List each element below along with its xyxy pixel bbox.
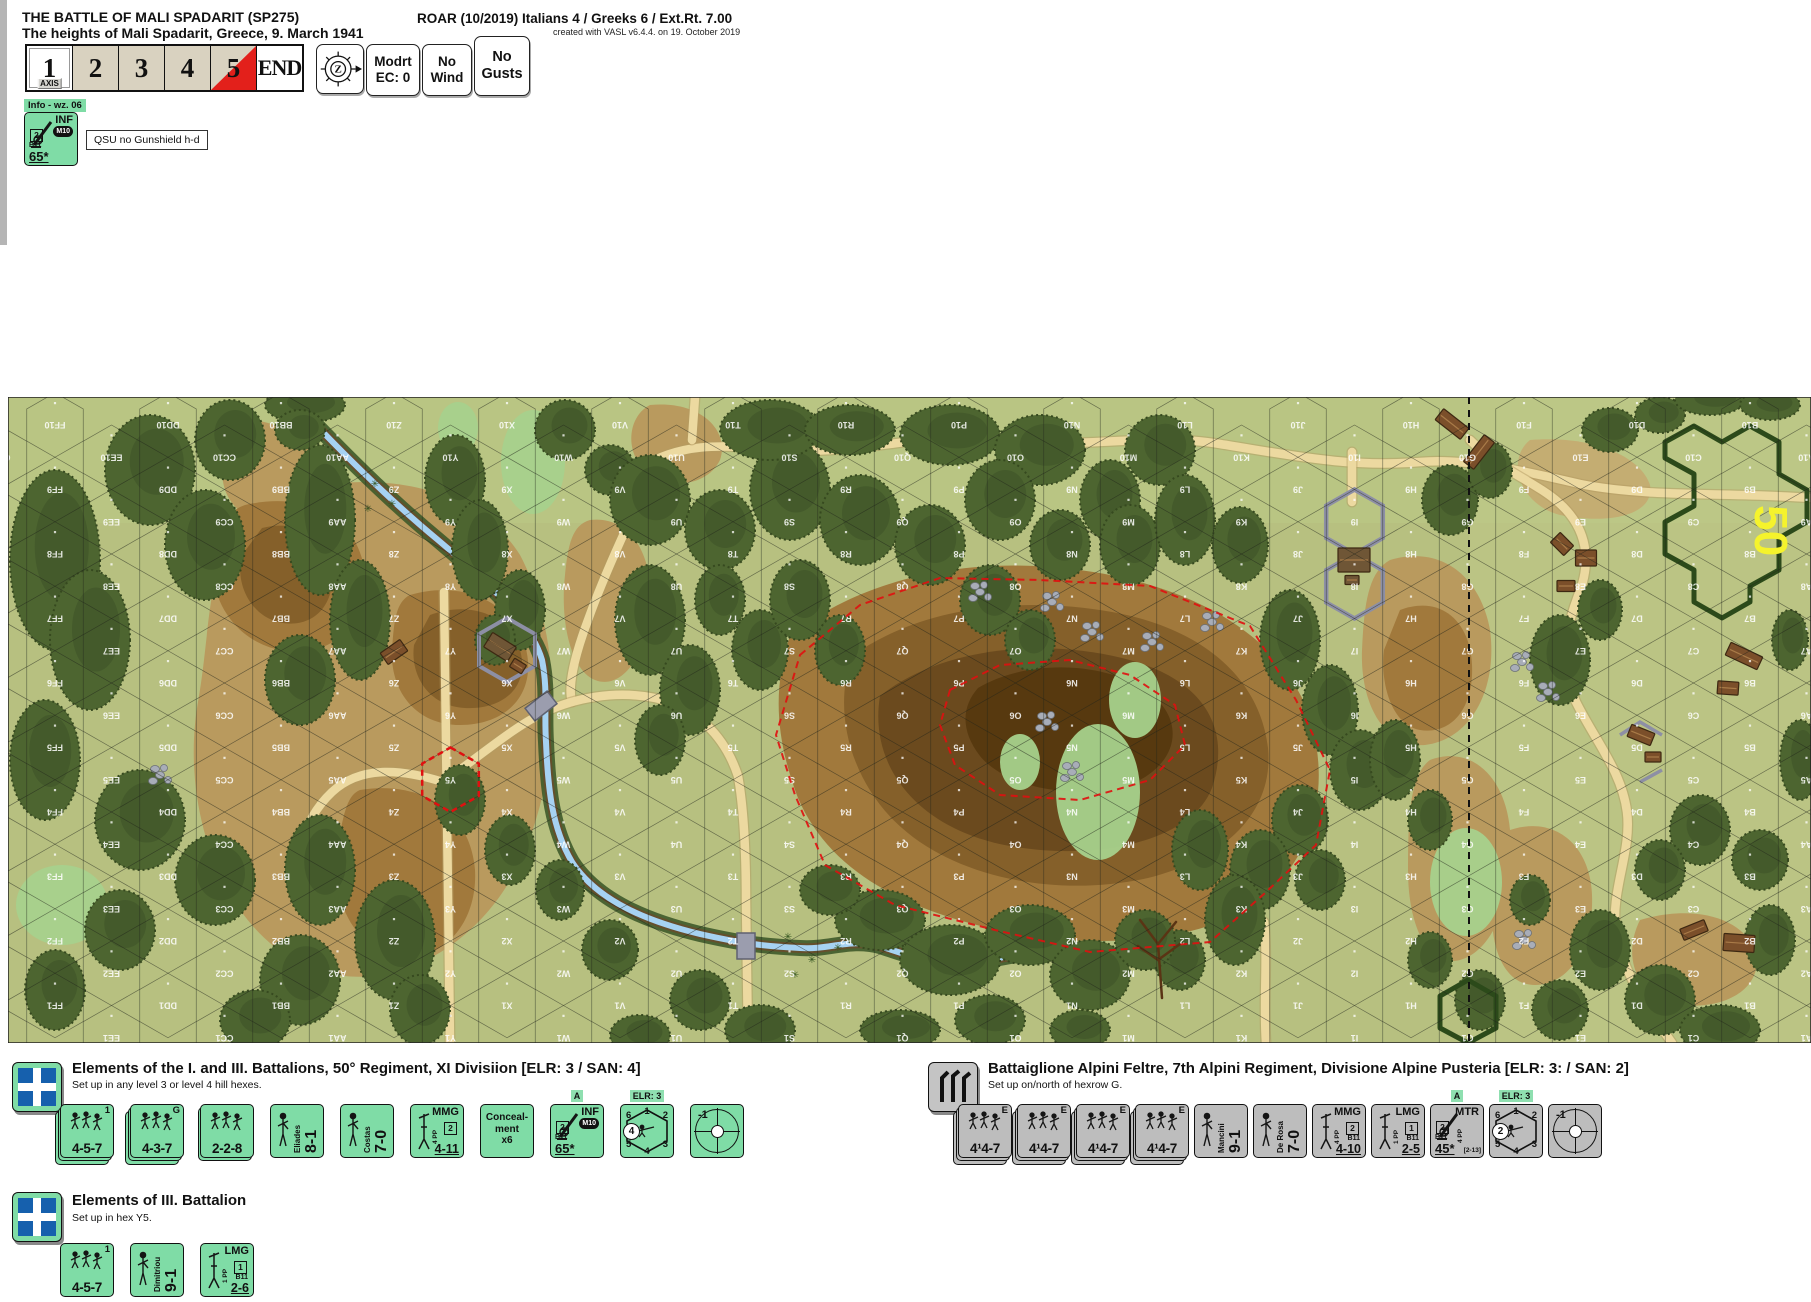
svg-text:G4: G4 xyxy=(1461,839,1473,849)
svg-text:P5: P5 xyxy=(953,743,964,753)
svg-text:E2: E2 xyxy=(1575,968,1586,978)
greek-iii-subtitle: Set up in hex Y5. xyxy=(72,1212,152,1224)
svg-text:D7: D7 xyxy=(1631,614,1643,624)
svg-text:K8: K8 xyxy=(1236,581,1248,591)
svg-text:J1: J1 xyxy=(1293,1001,1303,1011)
svg-text:M9: M9 xyxy=(1122,517,1135,527)
svg-text:T9: T9 xyxy=(728,485,739,495)
svg-text:Q7: Q7 xyxy=(896,646,908,656)
svg-text:EE3: EE3 xyxy=(103,904,120,914)
svg-text:AA3: AA3 xyxy=(328,904,346,914)
svg-text:E9: E9 xyxy=(1575,517,1586,527)
svg-text:B1: B1 xyxy=(1744,1001,1756,1011)
svg-text:X6: X6 xyxy=(501,678,512,688)
counter-cell: ELR: 36125434 xyxy=(620,1090,674,1158)
counter-INF[interactable]: INFM102B1165* xyxy=(550,1104,604,1158)
svg-text:P3: P3 xyxy=(953,872,964,882)
svg-text:F1: F1 xyxy=(1519,1001,1530,1011)
svg-text:V5: V5 xyxy=(614,743,625,753)
svg-text:O9: O9 xyxy=(1009,517,1021,527)
counter-4¹4-7[interactable]: E4¹4-7 xyxy=(1076,1104,1130,1158)
svg-text:V10: V10 xyxy=(612,420,628,430)
svg-text:F3: F3 xyxy=(1519,872,1530,882)
svg-text:Q5: Q5 xyxy=(896,775,908,785)
svg-text:DD1: DD1 xyxy=(159,1001,177,1011)
svg-text:O10: O10 xyxy=(1007,452,1024,462)
svg-text:U7: U7 xyxy=(671,646,683,656)
svg-text:M7: M7 xyxy=(1122,646,1135,656)
svg-text:Z10: Z10 xyxy=(386,420,402,430)
svg-text:M10: M10 xyxy=(1120,452,1138,462)
counter-cell: ·E4¹4-7 xyxy=(958,1090,1012,1158)
svg-text:C5: C5 xyxy=(1688,775,1700,785)
counter-cell: ·LMG1 PP1B112-5 xyxy=(1371,1090,1425,1158)
svg-text:GG5: GG5 xyxy=(0,775,8,785)
svg-text:T7: T7 xyxy=(728,614,739,624)
svg-text:H1: H1 xyxy=(1405,1001,1417,1011)
svg-text:I1: I1 xyxy=(1351,1033,1359,1043)
svg-text:W10: W10 xyxy=(554,452,573,462)
svg-text:AA1: AA1 xyxy=(328,1033,346,1043)
counter-2-2-8[interactable]: 2-2-8 xyxy=(200,1104,254,1158)
svg-text:F10: F10 xyxy=(1516,420,1532,430)
svg-text:Y8: Y8 xyxy=(445,581,456,591)
svg-text:D10: D10 xyxy=(1629,420,1646,430)
svg-text:I10: I10 xyxy=(1348,452,1361,462)
counter-LMG[interactable]: LMG1 PP1B112-6 xyxy=(200,1243,254,1297)
svg-text:GG6: GG6 xyxy=(0,710,8,720)
svg-text:V9: V9 xyxy=(614,485,625,495)
svg-text:U4: U4 xyxy=(671,839,683,849)
svg-text:E8: E8 xyxy=(1575,581,1586,591)
svg-text:R6: R6 xyxy=(840,678,852,688)
svg-text:T3: T3 xyxy=(728,872,739,882)
counter-cell: ·MMG4 PP2B114-10 xyxy=(1312,1090,1366,1158)
svg-text:K6: K6 xyxy=(1236,710,1248,720)
svg-text:K2: K2 xyxy=(1236,968,1248,978)
svg-text:L10: L10 xyxy=(1177,420,1193,430)
svg-text:P7: P7 xyxy=(953,614,964,624)
svg-text:AA7: AA7 xyxy=(328,646,346,656)
svg-text:H9: H9 xyxy=(1405,485,1417,495)
svg-text:N5: N5 xyxy=(1066,743,1078,753)
svg-text:GG10: GG10 xyxy=(0,452,11,462)
svg-text:Z5: Z5 xyxy=(389,743,400,753)
svg-text:F7: F7 xyxy=(1519,614,1530,624)
svg-text:U3: U3 xyxy=(671,904,683,914)
svg-text:C7: C7 xyxy=(1688,646,1700,656)
counter-4-5-7[interactable]: 14-5-7 xyxy=(60,1104,114,1158)
svg-text:J3: J3 xyxy=(1293,872,1303,882)
svg-text:Q9: Q9 xyxy=(896,517,908,527)
svg-text:W4: W4 xyxy=(557,839,571,849)
svg-text:H10: H10 xyxy=(1403,420,1420,430)
svg-text:R5: R5 xyxy=(840,743,852,753)
svg-text:L9: L9 xyxy=(1180,485,1191,495)
svg-text:EE2: EE2 xyxy=(103,968,120,978)
counter-cell: ·Mancini9-1 xyxy=(1194,1090,1248,1158)
svg-text:A1: A1 xyxy=(1801,1033,1811,1043)
svg-text:G2: G2 xyxy=(1461,968,1473,978)
svg-text:T10: T10 xyxy=(725,420,741,430)
svg-text:X1: X1 xyxy=(501,1001,512,1011)
svg-text:CC9: CC9 xyxy=(215,517,233,527)
svg-text:EE10: EE10 xyxy=(100,452,122,462)
counter-cell: AINFM102B1165* xyxy=(550,1090,604,1158)
svg-text:K9: K9 xyxy=(1236,517,1248,527)
svg-text:R8: R8 xyxy=(840,549,852,559)
svg-text:GG2: GG2 xyxy=(0,968,8,978)
counter-Mancini[interactable]: Mancini9-1 xyxy=(1194,1104,1248,1158)
svg-text:FF10: FF10 xyxy=(44,420,65,430)
svg-text:DD4: DD4 xyxy=(159,807,177,817)
axis-chip[interactable]: AXIS xyxy=(37,78,62,89)
svg-text:EE5: EE5 xyxy=(103,775,120,785)
svg-text:F4: F4 xyxy=(1519,807,1530,817)
svg-text:Q1: Q1 xyxy=(896,1033,908,1043)
counter-cell: ·G4-3-7 xyxy=(130,1090,184,1158)
svg-text:N4: N4 xyxy=(1066,807,1078,817)
svg-text:R4: R4 xyxy=(840,807,852,817)
greek-iii-counters: ·14-5-7·Dimitriou9-1·LMG1 PP1B112-6 xyxy=(60,1229,254,1297)
svg-text:D1: D1 xyxy=(1631,1001,1643,1011)
greek-iii-title: Elements of III. Battalion xyxy=(72,1192,246,1209)
svg-text:G8: G8 xyxy=(1461,581,1473,591)
svg-text:R1: R1 xyxy=(840,1001,852,1011)
svg-text:Y1: Y1 xyxy=(445,1033,456,1043)
svg-text:G7: G7 xyxy=(1461,646,1473,656)
counter-MTR[interactable]: MTR2B1145*[2-13]4 PP xyxy=(1430,1104,1484,1158)
svg-text:I3: I3 xyxy=(1351,904,1359,914)
svg-text:I9: I9 xyxy=(1351,517,1359,527)
svg-text:O4: O4 xyxy=(1009,839,1021,849)
vasl-window: THE BATTLE OF MALI SPADARIT (SP275) The … xyxy=(0,0,1811,1302)
svg-text:DD7: DD7 xyxy=(159,614,177,624)
svg-text:T6: T6 xyxy=(728,678,739,688)
svg-text:FF9: FF9 xyxy=(47,485,63,495)
svg-text:T5: T5 xyxy=(728,743,739,753)
svg-text:H5: H5 xyxy=(1405,743,1417,753)
svg-text:X9: X9 xyxy=(501,485,512,495)
svg-text:T1: T1 xyxy=(728,1001,739,1011)
counter--1[interactable]: -1 xyxy=(690,1104,744,1158)
svg-text:AA5: AA5 xyxy=(328,775,346,785)
svg-text:B2: B2 xyxy=(1744,936,1756,946)
svg-text:U10: U10 xyxy=(668,452,685,462)
svg-text:E3: E3 xyxy=(1575,904,1586,914)
svg-text:E6: E6 xyxy=(1575,710,1586,720)
svg-text:P8: P8 xyxy=(953,549,964,559)
svg-text:Z1: Z1 xyxy=(389,1001,400,1011)
svg-text:CC5: CC5 xyxy=(215,775,233,785)
svg-text:S2: S2 xyxy=(784,968,795,978)
svg-text:N9: N9 xyxy=(1066,485,1078,495)
counter-cell: ·LMG1 PP1B112-6 xyxy=(200,1229,254,1297)
svg-text:W5: W5 xyxy=(557,775,571,785)
svg-text:P2: P2 xyxy=(953,936,964,946)
svg-text:P10: P10 xyxy=(951,420,967,430)
svg-text:A8: A8 xyxy=(1801,581,1811,591)
svg-text:F2: F2 xyxy=(1519,936,1530,946)
svg-text:S9: S9 xyxy=(784,517,795,527)
svg-text:CC8: CC8 xyxy=(215,581,233,591)
svg-text:BB5: BB5 xyxy=(272,743,290,753)
svg-text:C10: C10 xyxy=(1685,452,1702,462)
svg-text:GG1: GG1 xyxy=(0,1033,8,1043)
svg-text:A10: A10 xyxy=(1798,452,1811,462)
svg-text:V4: V4 xyxy=(614,807,625,817)
svg-text:D4: D4 xyxy=(1631,807,1643,817)
counter-4¹4-7[interactable]: E4¹4-7 xyxy=(1135,1104,1189,1158)
svg-text:H3: H3 xyxy=(1405,872,1417,882)
svg-text:Z2: Z2 xyxy=(389,936,400,946)
svg-text:L8: L8 xyxy=(1180,549,1191,559)
counter-cell: ·2-2-8 xyxy=(200,1090,254,1158)
svg-text:X3: X3 xyxy=(501,872,512,882)
svg-text:X8: X8 xyxy=(501,549,512,559)
svg-text:EE6: EE6 xyxy=(103,710,120,720)
svg-text:M2: M2 xyxy=(1122,968,1135,978)
svg-text:FF8: FF8 xyxy=(47,549,63,559)
counter-4¹4-7[interactable]: E4¹4-7 xyxy=(958,1104,1012,1158)
counter-4¹4-7[interactable]: E4¹4-7 xyxy=(1017,1104,1071,1158)
greek-flag-icon-2 xyxy=(12,1192,62,1242)
svg-text:C6: C6 xyxy=(1688,710,1700,720)
counter-note[interactable]: Conceal-mentx6 xyxy=(480,1104,534,1158)
svg-text:K3: K3 xyxy=(1236,904,1248,914)
svg-text:O6: O6 xyxy=(1009,710,1021,720)
svg-text:N2: N2 xyxy=(1066,936,1078,946)
svg-text:H7: H7 xyxy=(1405,614,1417,624)
svg-text:Y3: Y3 xyxy=(445,904,456,914)
counter-cell: ·E4¹4-7 xyxy=(1017,1090,1071,1158)
svg-text:✳: ✳ xyxy=(808,955,816,966)
svg-text:K7: K7 xyxy=(1236,646,1248,656)
svg-text:✳: ✳ xyxy=(388,499,396,510)
svg-text:V7: V7 xyxy=(614,614,625,624)
svg-text:E10: E10 xyxy=(1572,452,1588,462)
svg-text:Y10: Y10 xyxy=(442,452,458,462)
counter--1[interactable]: -1 xyxy=(1548,1104,1602,1158)
svg-text:G5: G5 xyxy=(1461,775,1473,785)
svg-text:X2: X2 xyxy=(501,936,512,946)
svg-text:EE1: EE1 xyxy=(103,1033,120,1043)
svg-text:O7: O7 xyxy=(1009,646,1021,656)
svg-text:V2: V2 xyxy=(614,936,625,946)
counter-LMG[interactable]: LMG1 PP1B112-5 xyxy=(1371,1104,1425,1158)
svg-text:M5: M5 xyxy=(1122,775,1135,785)
svg-text:L3: L3 xyxy=(1180,872,1191,882)
svg-text:E5: E5 xyxy=(1575,775,1586,785)
counter-MMG[interactable]: MMG4 PP24-11 xyxy=(410,1104,464,1158)
svg-text:I7: I7 xyxy=(1351,646,1359,656)
svg-text:T2: T2 xyxy=(728,936,739,946)
svg-text:BB7: BB7 xyxy=(272,614,290,624)
svg-text:C2: C2 xyxy=(1688,968,1700,978)
svg-text:G6: G6 xyxy=(1461,710,1473,720)
svg-text:B3: B3 xyxy=(1744,872,1756,882)
italian-counters: ·E4¹4-7·E4¹4-7·E4¹4-7·E4¹4-7·Mancini9-1·… xyxy=(958,1090,1602,1158)
svg-text:BB8: BB8 xyxy=(272,549,290,559)
counter-dr[interactable]: 6125434 xyxy=(620,1104,674,1158)
svg-text:W2: W2 xyxy=(557,968,571,978)
svg-text:S10: S10 xyxy=(781,452,797,462)
svg-text:M8: M8 xyxy=(1122,581,1135,591)
counter-dr[interactable]: 6125432 xyxy=(1489,1104,1543,1158)
svg-text:U6: U6 xyxy=(671,710,683,720)
svg-text:BB4: BB4 xyxy=(272,807,290,817)
svg-text:AA10: AA10 xyxy=(326,452,349,462)
svg-text:Z6: Z6 xyxy=(389,678,400,688)
svg-text:DD8: DD8 xyxy=(159,549,177,559)
counter-tag: A xyxy=(1451,1090,1464,1102)
svg-text:Z4: Z4 xyxy=(389,807,400,817)
svg-text:O3: O3 xyxy=(1009,904,1021,914)
svg-text:BB1: BB1 xyxy=(272,1001,290,1011)
counter-cell: ·Conceal-mentx6 xyxy=(480,1090,534,1158)
svg-text:EE4: EE4 xyxy=(103,839,120,849)
svg-text:C9: C9 xyxy=(1688,517,1700,527)
svg-text:AA9: AA9 xyxy=(328,517,346,527)
svg-text:V1: V1 xyxy=(614,1001,625,1011)
svg-text:FF4: FF4 xyxy=(47,807,63,817)
svg-text:CC3: CC3 xyxy=(215,904,233,914)
counter-4-5-7[interactable]: 14-5-7 xyxy=(60,1243,114,1297)
svg-text:R10: R10 xyxy=(838,420,855,430)
svg-text:Q4: Q4 xyxy=(896,839,908,849)
svg-text:T8: T8 xyxy=(728,549,739,559)
svg-text:N7: N7 xyxy=(1066,614,1078,624)
svg-text:Q6: Q6 xyxy=(896,710,908,720)
svg-text:U1: U1 xyxy=(671,1033,683,1043)
svg-text:Y2: Y2 xyxy=(445,968,456,978)
svg-text:C3: C3 xyxy=(1688,904,1700,914)
svg-text:B4: B4 xyxy=(1744,807,1756,817)
svg-text:K4: K4 xyxy=(1236,839,1248,849)
svg-text:M3: M3 xyxy=(1122,904,1135,914)
svg-text:G1: G1 xyxy=(1461,1033,1473,1043)
counter-MMG[interactable]: MMG4 PP2B114-10 xyxy=(1312,1104,1366,1158)
counter-Dimitriou[interactable]: Dimitriou9-1 xyxy=(130,1243,184,1297)
svg-text:F6: F6 xyxy=(1519,678,1530,688)
svg-text:L6: L6 xyxy=(1180,678,1191,688)
svg-text:GG4: GG4 xyxy=(0,839,8,849)
svg-text:FF2: FF2 xyxy=(47,936,63,946)
svg-text:W6: W6 xyxy=(557,710,571,720)
counter-Costas[interactable]: Costas7-0 xyxy=(340,1104,394,1158)
svg-text:I5: I5 xyxy=(1351,775,1359,785)
svg-text:C1: C1 xyxy=(1688,1033,1700,1043)
counter-Eliades[interactable]: Eliades8-1 xyxy=(270,1104,324,1158)
counter-cell: ELR: 36125432 xyxy=(1489,1090,1543,1158)
svg-text:X7: X7 xyxy=(501,614,512,624)
svg-text:CC6: CC6 xyxy=(215,710,233,720)
svg-text:O8: O8 xyxy=(1009,581,1021,591)
counter-cell: AMTR2B1145*[2-13]4 PP xyxy=(1430,1090,1484,1158)
svg-text:R9: R9 xyxy=(840,485,852,495)
svg-text:T4: T4 xyxy=(728,807,739,817)
svg-text:J10: J10 xyxy=(1290,420,1305,430)
svg-text:P4: P4 xyxy=(953,807,964,817)
svg-text:N3: N3 xyxy=(1066,872,1078,882)
svg-text:DD3: DD3 xyxy=(159,872,177,882)
svg-text:B7: B7 xyxy=(1744,614,1756,624)
counter-DeRosa[interactable]: De Rosa7-0 xyxy=(1253,1104,1307,1158)
svg-text:FF1: FF1 xyxy=(47,1001,63,1011)
svg-text:M6: M6 xyxy=(1122,710,1135,720)
svg-text:I4: I4 xyxy=(1351,839,1359,849)
svg-text:S7: S7 xyxy=(784,646,795,656)
svg-text:O2: O2 xyxy=(1009,968,1021,978)
counter-tag: ELR: 3 xyxy=(1499,1090,1534,1102)
svg-text:O1: O1 xyxy=(1009,1033,1021,1043)
svg-text:H6: H6 xyxy=(1405,678,1417,688)
svg-text:W9: W9 xyxy=(557,517,571,527)
svg-text:CC1: CC1 xyxy=(215,1033,233,1043)
svg-text:B9: B9 xyxy=(1744,485,1756,495)
svg-text:F8: F8 xyxy=(1519,549,1530,559)
svg-text:G9: G9 xyxy=(1461,517,1473,527)
counter-tag: A xyxy=(571,1090,584,1102)
svg-text:X10: X10 xyxy=(499,420,515,430)
svg-text:A3: A3 xyxy=(1801,904,1811,914)
svg-text:AA6: AA6 xyxy=(328,710,346,720)
svg-text:L4: L4 xyxy=(1180,807,1191,817)
svg-text:C4: C4 xyxy=(1688,839,1700,849)
svg-text:J7: J7 xyxy=(1293,614,1303,624)
counter-4-3-7[interactable]: G4-3-7 xyxy=(130,1104,184,1158)
svg-text:N6: N6 xyxy=(1066,678,1078,688)
svg-text:AA8: AA8 xyxy=(328,581,346,591)
svg-text:EE7: EE7 xyxy=(103,646,120,656)
counter-cell: ·E4¹4-7 xyxy=(1076,1090,1130,1158)
svg-text:GG9: GG9 xyxy=(0,517,8,527)
svg-text:U8: U8 xyxy=(671,581,683,591)
svg-text:Y9: Y9 xyxy=(445,517,456,527)
svg-text:V8: V8 xyxy=(614,549,625,559)
svg-text:S3: S3 xyxy=(784,904,795,914)
svg-text:D9: D9 xyxy=(1631,485,1643,495)
svg-text:BB6: BB6 xyxy=(272,678,290,688)
svg-text:CC7: CC7 xyxy=(215,646,233,656)
svg-text:X5: X5 xyxy=(501,743,512,753)
svg-text:J8: J8 xyxy=(1293,549,1303,559)
svg-text:D5: D5 xyxy=(1631,743,1643,753)
svg-text:U5: U5 xyxy=(671,775,683,785)
svg-text:K5: K5 xyxy=(1236,775,1248,785)
svg-text:DD9: DD9 xyxy=(159,485,177,495)
counter-tag: ELR: 3 xyxy=(630,1090,665,1102)
counter-cell: ·MMG4 PP24-11 xyxy=(410,1090,464,1158)
svg-text:A6: A6 xyxy=(1801,710,1811,720)
svg-text:Z3: Z3 xyxy=(389,872,400,882)
svg-text:V3: V3 xyxy=(614,872,625,882)
svg-text:GG8: GG8 xyxy=(0,581,8,591)
counter-cell: ·14-5-7 xyxy=(60,1229,114,1297)
svg-text:J2: J2 xyxy=(1293,936,1303,946)
svg-text:H2: H2 xyxy=(1405,936,1417,946)
svg-text:L1: L1 xyxy=(1180,1001,1191,1011)
svg-text:N10: N10 xyxy=(1064,420,1081,430)
svg-text:Z7: Z7 xyxy=(389,614,400,624)
svg-text:D2: D2 xyxy=(1631,936,1643,946)
svg-text:A7: A7 xyxy=(1801,646,1811,656)
svg-text:EE9: EE9 xyxy=(103,517,120,527)
svg-text:BB3: BB3 xyxy=(272,872,290,882)
svg-text:J5: J5 xyxy=(1293,743,1303,753)
svg-text:S8: S8 xyxy=(784,581,795,591)
svg-text:AA4: AA4 xyxy=(328,839,346,849)
